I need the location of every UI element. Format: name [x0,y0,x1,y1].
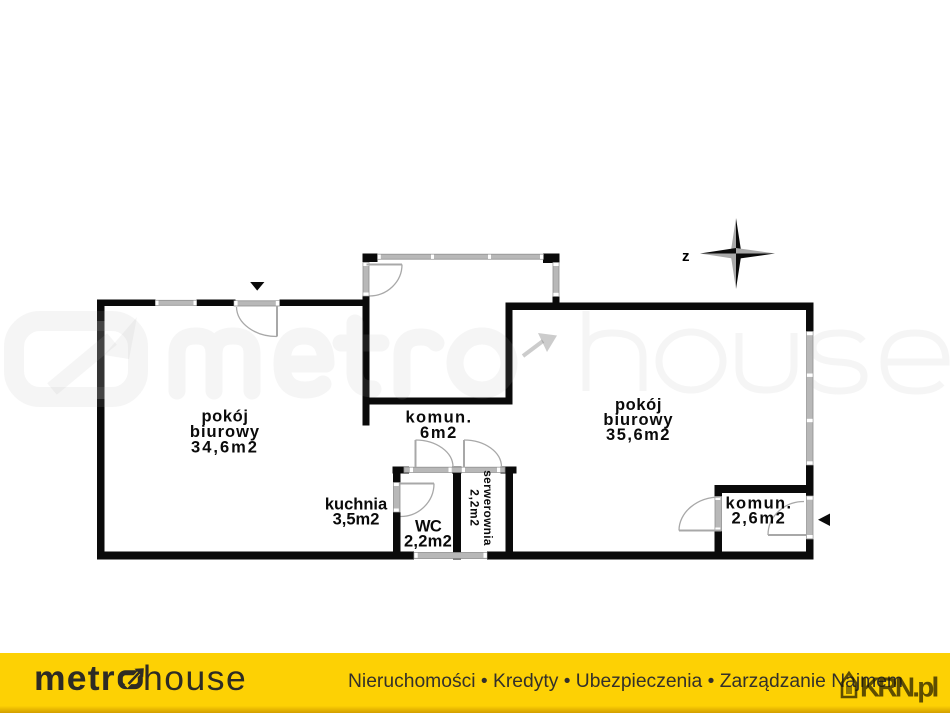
svg-text:z: z [682,248,690,265]
svg-text:metr: metr [34,658,116,698]
svg-text:2,2m2: 2,2m2 [468,489,482,526]
svg-text:serwerownia: serwerownia [481,470,495,546]
svg-text:2,2m2: 2,2m2 [404,533,452,551]
svg-text:6m2: 6m2 [420,424,458,442]
svg-text:Nieruchomości • Kredyty • Ubez: Nieruchomości • Kredyty • Ubezpieczenia … [348,671,903,692]
svg-text:KRN.pl: KRN.pl [860,672,938,703]
svg-text:house: house [143,658,247,698]
svg-text:3,5m2: 3,5m2 [333,511,380,529]
svg-text:35,6m2: 35,6m2 [606,426,671,444]
svg-text:2,6m2: 2,6m2 [731,510,786,528]
svg-text:34,6m2: 34,6m2 [191,439,259,457]
